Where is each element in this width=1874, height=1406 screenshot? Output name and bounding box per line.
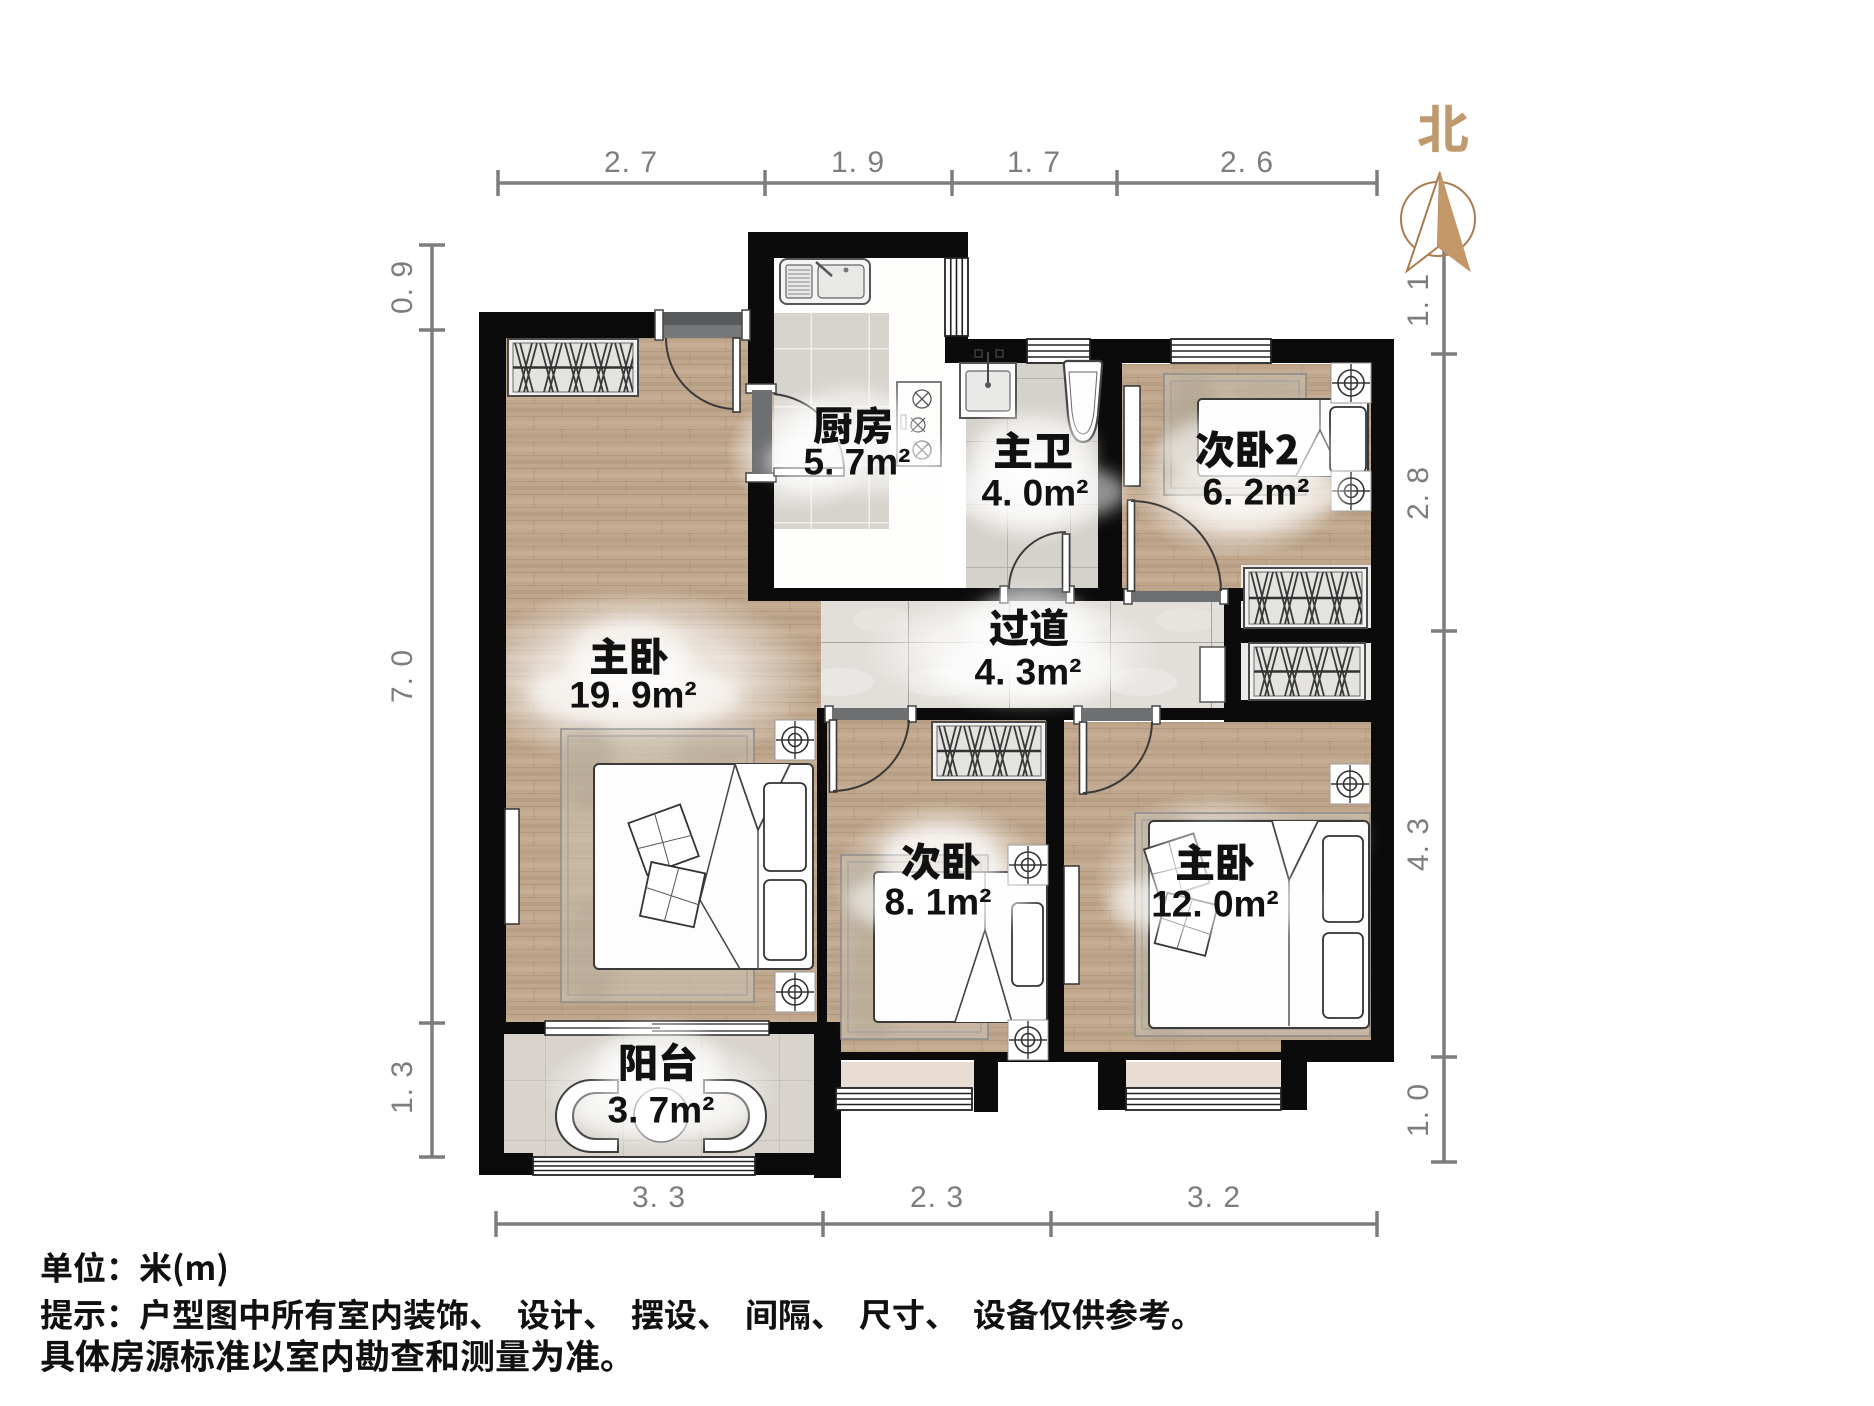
svg-text:1. 1: 1. 1	[1402, 273, 1435, 327]
svg-text:1. 9: 1. 9	[831, 146, 885, 179]
svg-text:2. 7: 2. 7	[604, 146, 658, 179]
svg-text:4. 3: 4. 3	[1402, 817, 1435, 871]
svg-text:3. 3: 3. 3	[632, 1181, 686, 1214]
svg-text:19. 9m²: 19. 9m²	[569, 674, 697, 715]
svg-text:12. 0m²: 12. 0m²	[1151, 883, 1279, 924]
svg-text:3. 2: 3. 2	[1187, 1181, 1241, 1214]
svg-text:7. 0: 7. 0	[386, 649, 419, 703]
svg-text:1. 3: 1. 3	[386, 1060, 419, 1114]
svg-text:2. 6: 2. 6	[1220, 146, 1274, 179]
svg-text:2. 3: 2. 3	[910, 1181, 964, 1214]
svg-text:0. 9: 0. 9	[386, 260, 419, 314]
svg-text:4. 3m²: 4. 3m²	[975, 651, 1082, 692]
svg-text:8. 1m²: 8. 1m²	[885, 881, 992, 922]
svg-text:4. 0m²: 4. 0m²	[982, 472, 1089, 513]
svg-text:1. 7: 1. 7	[1007, 146, 1061, 179]
svg-text:6. 2m²: 6. 2m²	[1203, 471, 1310, 512]
svg-text:1. 0: 1. 0	[1402, 1083, 1435, 1137]
svg-text:2. 8: 2. 8	[1402, 466, 1435, 520]
svg-text:3. 7m²: 3. 7m²	[608, 1089, 715, 1130]
svg-text:5. 7m²: 5. 7m²	[804, 441, 911, 482]
